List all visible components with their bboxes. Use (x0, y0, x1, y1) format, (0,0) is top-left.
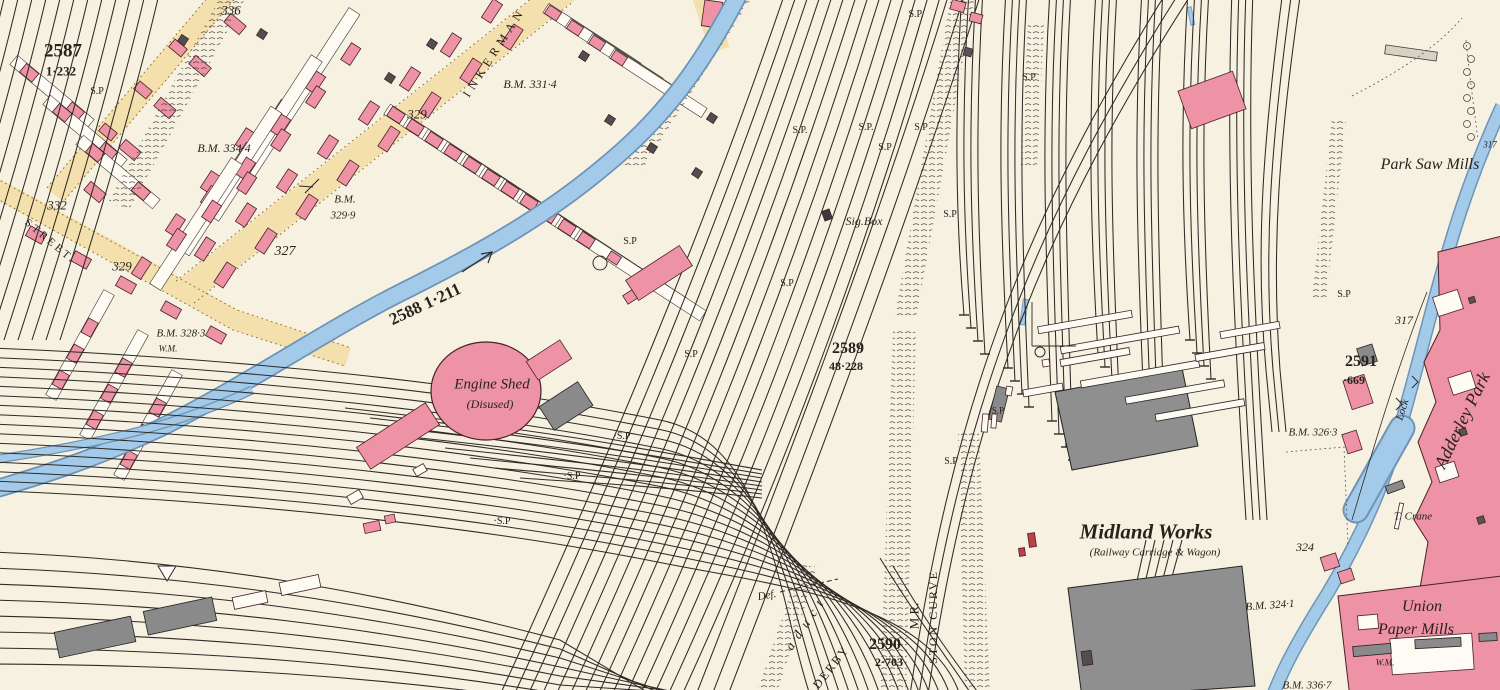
map-artwork (0, 0, 1500, 690)
os-map-sheet: 25871·232S.P336B.M. 334·4329INKERMANB.M.… (0, 0, 1500, 690)
